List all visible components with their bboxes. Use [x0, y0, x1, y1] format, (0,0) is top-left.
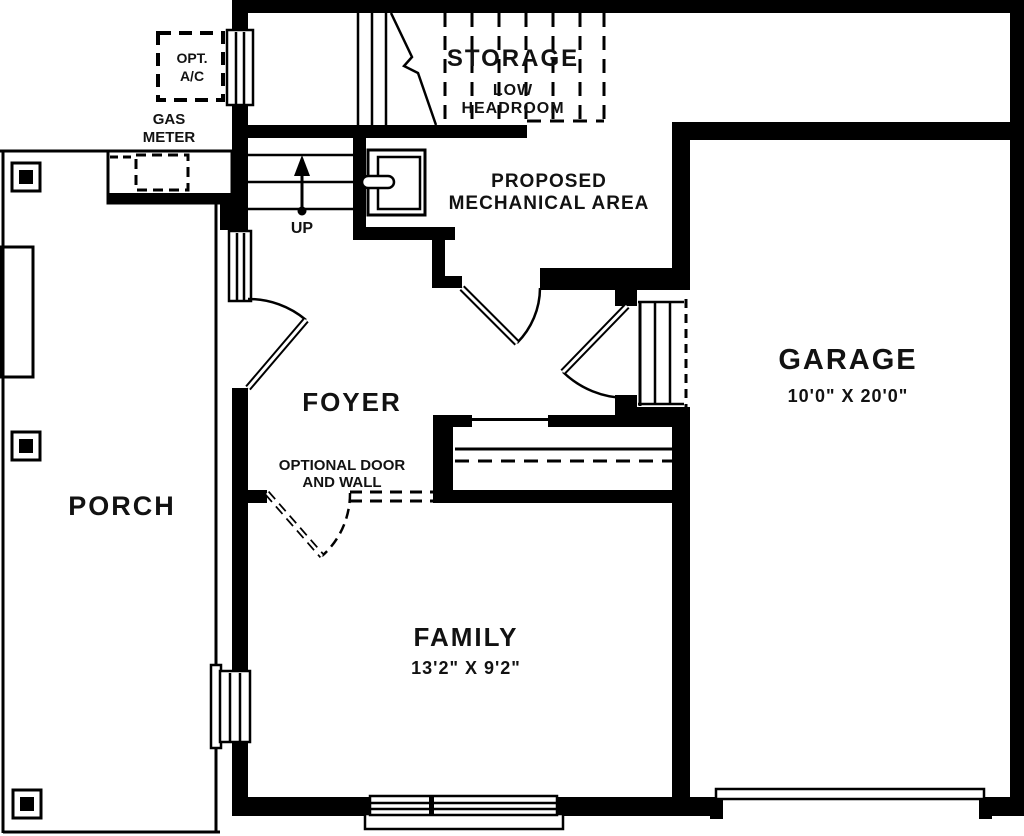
garage-entry-steps [637, 299, 690, 407]
optional-door-label-2: AND WALL [302, 474, 381, 491]
wall-mech-step [432, 240, 445, 288]
mechanical-door-swing-arc [517, 288, 540, 343]
garage-door-jamb-right [979, 799, 992, 819]
window-family-bottom [365, 796, 563, 829]
wall-mech-stub [445, 276, 462, 288]
wall-garage-left-upper [672, 140, 690, 270]
storage-note-2: HEADROOM [461, 100, 564, 117]
optional-door-dashed [267, 492, 433, 556]
front-door-swing-arc [248, 299, 306, 320]
optional-door-jamb-stub [248, 490, 267, 503]
family-dimensions: 13'2" X 9'2" [411, 658, 521, 678]
porch-posts [12, 163, 41, 818]
window-left-top [227, 30, 253, 105]
floor-plan: STORAGE LOW HEADROOM PROPOSED MECHANICAL… [0, 0, 1024, 836]
divider-bottom [433, 490, 678, 503]
optional-ac-dashed-box [158, 33, 223, 100]
storage-label: STORAGE [447, 45, 579, 72]
wall-garage-top [672, 122, 1024, 140]
gas-meter-label-1: GAS [153, 111, 186, 128]
wall-mech-bottom-b [540, 268, 690, 290]
wall-top [232, 0, 1024, 13]
divider-left-block [433, 415, 453, 503]
porch-post-icon [12, 163, 40, 191]
wall-garage-left-lower [672, 420, 690, 797]
wall-under-storage [232, 125, 527, 138]
opt-ac-label-2: A/C [180, 68, 204, 84]
garage-overhead-door [716, 789, 984, 799]
water-heater-icon [362, 150, 425, 215]
window-family-left [211, 665, 250, 748]
mechanical-label-1: PROPOSED [491, 171, 607, 192]
optional-door-label-1: OPTIONAL DOOR [279, 457, 406, 474]
front-door [248, 299, 306, 388]
floor-plan-drawing: STORAGE LOW HEADROOM PROPOSED MECHANICAL… [0, 0, 1024, 836]
garage-entry-door-swing-arc [563, 372, 627, 398]
divider-top-left [433, 415, 472, 427]
storage-note-1: LOW [493, 82, 533, 99]
garage-entry-door [563, 306, 627, 398]
porch-post-icon [13, 790, 41, 818]
foyer-label: FOYER [302, 387, 402, 417]
family-label: FAMILY [414, 622, 519, 652]
garage-door-jamb-left [710, 799, 723, 819]
garage-dimensions: 10'0" X 20'0" [788, 386, 909, 406]
divider-opening-lines [455, 449, 672, 461]
mechanical-label-2: MECHANICAL AREA [449, 193, 650, 214]
wall-family-bottom-left [232, 797, 370, 816]
porch-post-icon [12, 432, 40, 460]
opt-ac-label-1: OPT. [176, 50, 207, 66]
wall-left-4 [232, 388, 248, 673]
up-arrow-icon [294, 155, 310, 216]
wall-left-1 [232, 0, 248, 33]
divider-top-right [548, 415, 672, 427]
wall-stair-right [353, 138, 366, 240]
window-foyer-sidelight [229, 231, 251, 301]
wall-family-bottom-right [557, 797, 690, 816]
wall-mech-bottom-a [353, 227, 455, 240]
window-mullion [429, 796, 434, 815]
stair-upper-treads [358, 13, 386, 125]
stair-break-line [391, 13, 436, 125]
divider-top-thin-line [472, 418, 548, 421]
porch-planter [1, 247, 33, 377]
gas-meter-box [108, 151, 232, 203]
mechanical-door [462, 288, 540, 343]
up-label: UP [291, 220, 314, 237]
porch-label: PORCH [68, 491, 176, 521]
garage-label: GARAGE [778, 344, 917, 376]
gas-meter-label-2: METER [143, 129, 196, 146]
wall-garage-door-jamb-top [615, 290, 637, 306]
optional-door-swing-arc [322, 493, 350, 556]
